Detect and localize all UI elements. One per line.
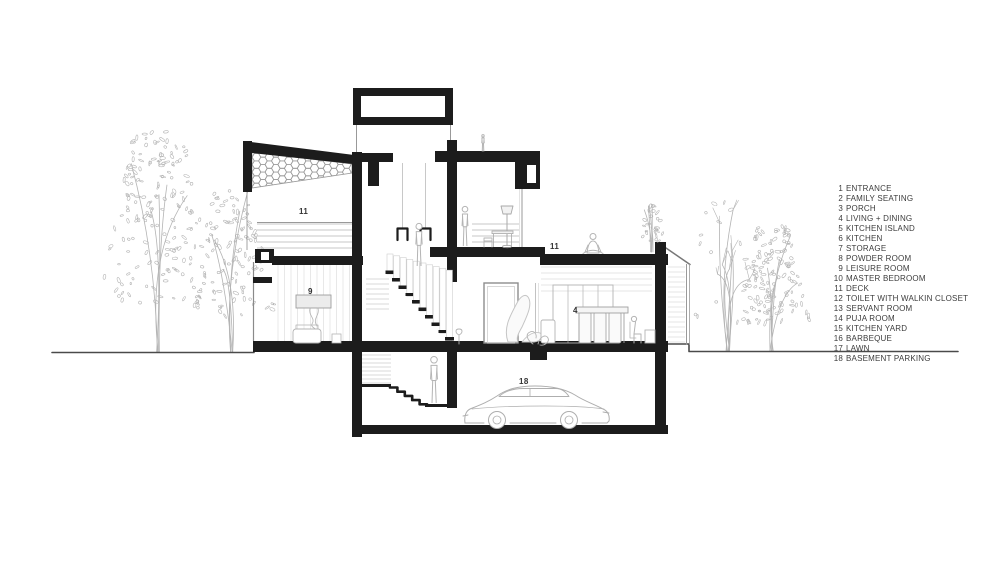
legend-item: 1ENTRANCE <box>828 184 968 194</box>
legend-item-label: STORAGE <box>846 244 886 254</box>
legend-item-label: KITCHEN YARD <box>846 324 907 334</box>
legend-item: 2FAMILY SEATING <box>828 194 968 204</box>
legend-item: 13SERVANT ROOM <box>828 304 968 314</box>
legend-item-label: POWDER ROOM <box>846 254 911 264</box>
legend-item-label: MASTER BEDROOM <box>846 274 926 284</box>
legend-item-number: 17 <box>828 344 843 354</box>
trees-right <box>694 200 811 351</box>
legend-item-number: 16 <box>828 334 843 344</box>
legend-item-number: 8 <box>828 254 843 264</box>
legend-item: 9LEISURE ROOM <box>828 264 968 274</box>
legend-item: 8POWDER ROOM <box>828 254 968 264</box>
legend-item-label: DECK <box>846 284 869 294</box>
legend-item: 11DECK <box>828 284 968 294</box>
legend-item-number: 3 <box>828 204 843 214</box>
legend-item-label: PUJA ROOM <box>846 314 895 324</box>
legend-item-label: LIVING + DINING <box>846 214 912 224</box>
legend-item: 4LIVING + DINING <box>828 214 968 224</box>
legend-item-number: 11 <box>828 284 843 294</box>
legend-item: 17LAWN <box>828 344 968 354</box>
legend-item: 16BARBEQUE <box>828 334 968 344</box>
legend-item-label: LAWN <box>846 344 870 354</box>
room-label-leisure: 9 <box>308 287 313 296</box>
room-label-living: 4 <box>573 306 578 315</box>
legend: 1ENTRANCE2FAMILY SEATING3PORCH4LIVING + … <box>828 184 968 364</box>
building-structure <box>243 92 668 437</box>
legend-item-number: 1 <box>828 184 843 194</box>
legend-item-label: FAMILY SEATING <box>846 194 913 204</box>
legend-item-number: 6 <box>828 234 843 244</box>
legend-item-number: 12 <box>828 294 843 304</box>
legend-item-number: 13 <box>828 304 843 314</box>
furniture <box>293 206 655 345</box>
room-label-deck-right: 11 <box>550 242 559 251</box>
legend-item-label: BASEMENT PARKING <box>846 354 931 364</box>
legend-item-number: 9 <box>828 264 843 274</box>
room-label-basement: 18 <box>519 377 529 386</box>
room-label-deck-left: 11 <box>299 207 308 216</box>
legend-item-label: KITCHEN ISLAND <box>846 224 915 234</box>
legend-item: 12TOILET WITH WALKIN CLOSET <box>828 294 968 304</box>
legend-item-label: TOILET WITH WALKIN CLOSET <box>846 294 968 304</box>
legend-item: 3PORCH <box>828 204 968 214</box>
legend-item: 14PUJA ROOM <box>828 314 968 324</box>
legend-item-label: SERVANT ROOM <box>846 304 912 314</box>
legend-item: 6KITCHEN <box>828 234 968 244</box>
legend-item-label: KITCHEN <box>846 234 883 244</box>
legend-item-number: 7 <box>828 244 843 254</box>
legend-item: 7STORAGE <box>828 244 968 254</box>
legend-item: 10MASTER BEDROOM <box>828 274 968 284</box>
architectural-section-page: 11 9 11 4 18 1ENTRANCE2FAMILY SEATING3PO… <box>0 0 1000 563</box>
legend-item: 5KITCHEN ISLAND <box>828 224 968 234</box>
legend-item-number: 5 <box>828 224 843 234</box>
legend-item-label: ENTRANCE <box>846 184 892 194</box>
legend-item-number: 2 <box>828 194 843 204</box>
legend-item-number: 14 <box>828 314 843 324</box>
legend-item-number: 18 <box>828 354 843 364</box>
legend-item: 15KITCHEN YARD <box>828 324 968 334</box>
legend-item-label: LEISURE ROOM <box>846 264 910 274</box>
basement-car <box>463 386 609 429</box>
legend-item-number: 15 <box>828 324 843 334</box>
legend-item-number: 4 <box>828 214 843 224</box>
legend-item: 18BASEMENT PARKING <box>828 354 968 364</box>
legend-item-label: PORCH <box>846 204 876 214</box>
legend-item-number: 10 <box>828 274 843 284</box>
legend-item-label: BARBEQUE <box>846 334 892 344</box>
